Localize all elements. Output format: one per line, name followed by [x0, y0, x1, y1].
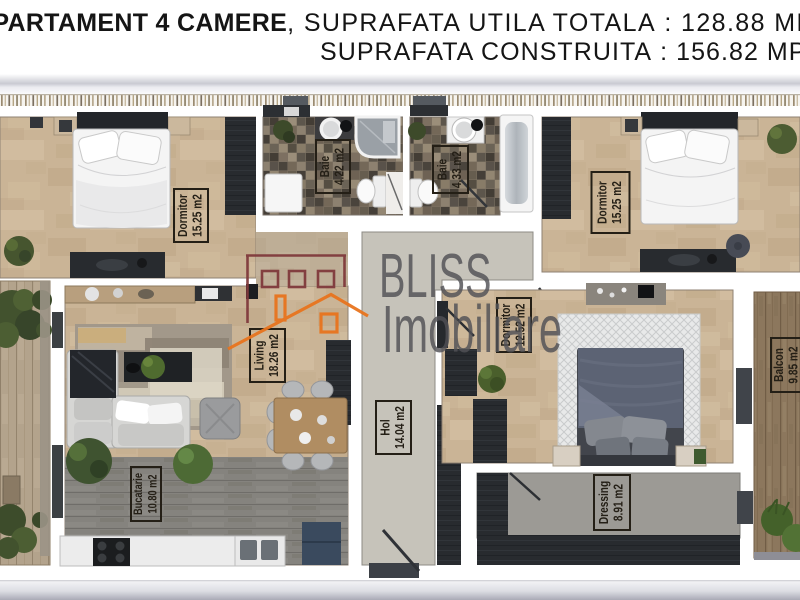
svg-text:Bucatarie10.80 m2: Bucatarie10.80 m2 [132, 473, 160, 515]
svg-text:Imobiliare: Imobiliare [382, 292, 562, 367]
svg-text:Dormitor15.25 m2: Dormitor15.25 m2 [177, 194, 205, 237]
svg-text:Dormitor15.25 m2: Dormitor15.25 m2 [597, 181, 625, 224]
svg-text:Dressing8.91 m2: Dressing8.91 m2 [598, 481, 626, 524]
